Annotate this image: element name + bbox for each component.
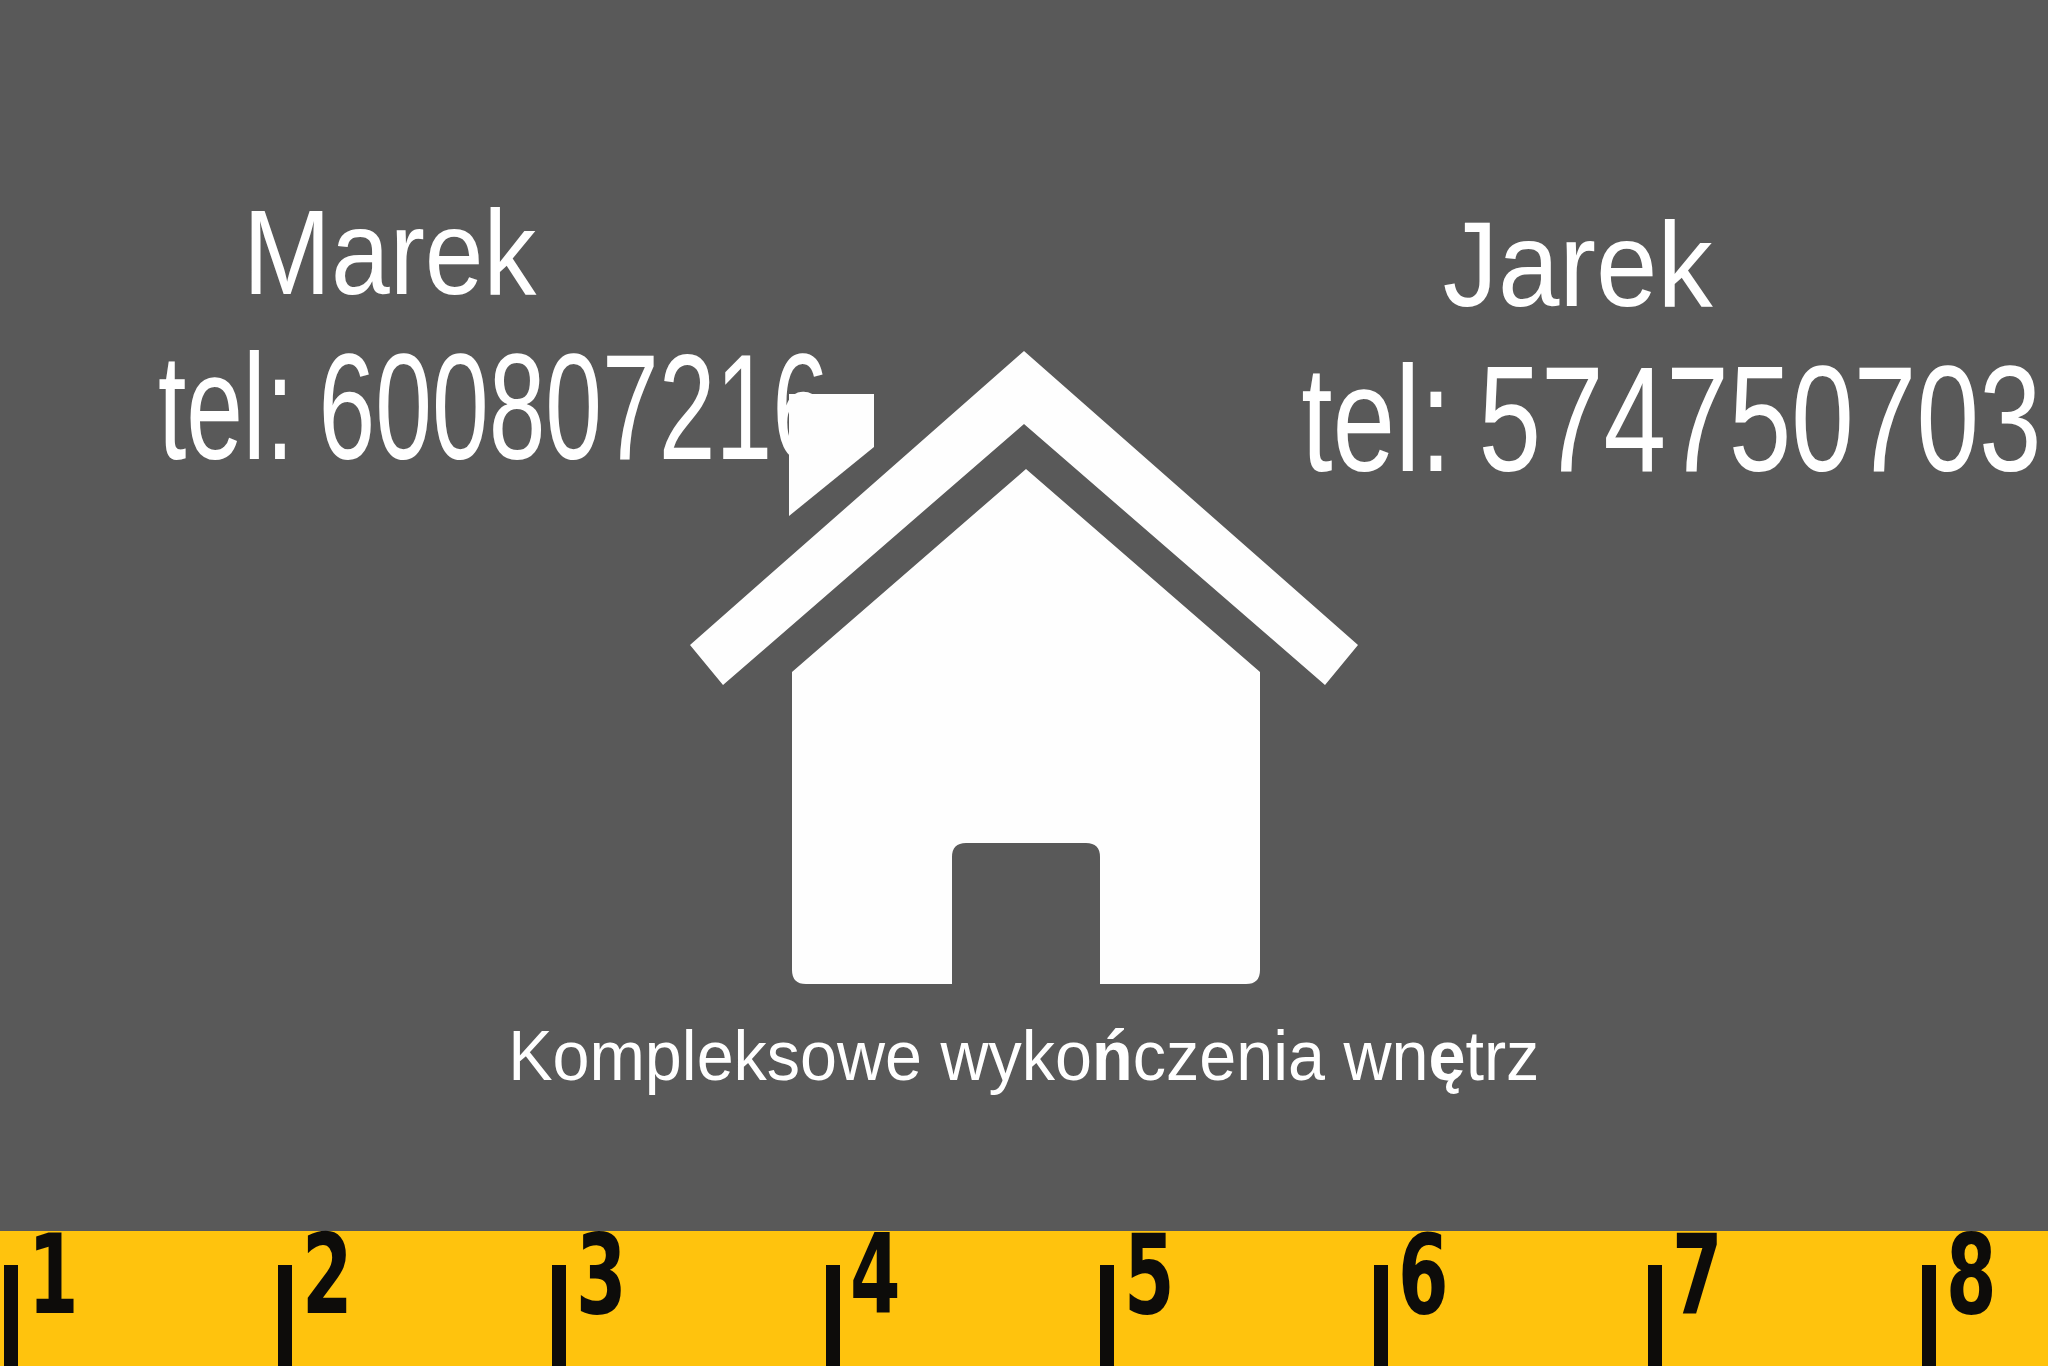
ruler-tick bbox=[826, 1265, 840, 1366]
tel-label: tel: bbox=[158, 323, 294, 491]
slogan: Kompleksowe wykończenia wnętrz bbox=[0, 1021, 2048, 1091]
business-card: Marek tel:600807216 Jarek tel:574750703 … bbox=[0, 0, 2048, 1366]
phone-number: 574750703 bbox=[1478, 335, 2041, 503]
ruler-number: 3 bbox=[576, 1220, 627, 1330]
ruler-number: 4 bbox=[850, 1220, 901, 1330]
ruler-number: 8 bbox=[1946, 1220, 1997, 1330]
contact-tel-line: tel:600807216 bbox=[0, 320, 780, 495]
ruler-tick bbox=[552, 1265, 566, 1366]
ruler-tick bbox=[4, 1265, 18, 1366]
slogan-segment: czenia wn bbox=[1133, 1017, 1429, 1095]
contact-name: Jarek bbox=[1443, 196, 1713, 332]
slogan-text: Kompleksowe wykończenia wnętrz bbox=[508, 1021, 1539, 1091]
contact-marek: Marek tel:600807216 bbox=[0, 184, 780, 495]
ruler-tick bbox=[1648, 1265, 1662, 1366]
ruler-number: 5 bbox=[1124, 1220, 1175, 1330]
contact-name: Marek bbox=[243, 184, 536, 320]
ruler-number: 6 bbox=[1398, 1220, 1449, 1330]
slogan-segment: Kompleksowe wyko bbox=[508, 1017, 1092, 1095]
ruler-number: 1 bbox=[28, 1220, 79, 1330]
ruler-tick bbox=[1374, 1265, 1388, 1366]
ruler-tick bbox=[278, 1265, 292, 1366]
ruler-number: 2 bbox=[302, 1220, 353, 1330]
contact-name-line: Jarek bbox=[1178, 196, 1978, 332]
ruler-number: 7 bbox=[1672, 1220, 1723, 1330]
ruler-tick bbox=[1922, 1265, 1936, 1366]
house-icon bbox=[680, 340, 1380, 1020]
ruler: 12345678 bbox=[0, 1231, 2048, 1366]
slogan-segment: ę bbox=[1429, 1017, 1466, 1095]
slogan-segment: ń bbox=[1092, 1017, 1133, 1095]
ruler-tick bbox=[1100, 1265, 1114, 1366]
contact-name-line: Marek bbox=[0, 184, 780, 320]
slogan-segment: trz bbox=[1466, 1017, 1540, 1095]
